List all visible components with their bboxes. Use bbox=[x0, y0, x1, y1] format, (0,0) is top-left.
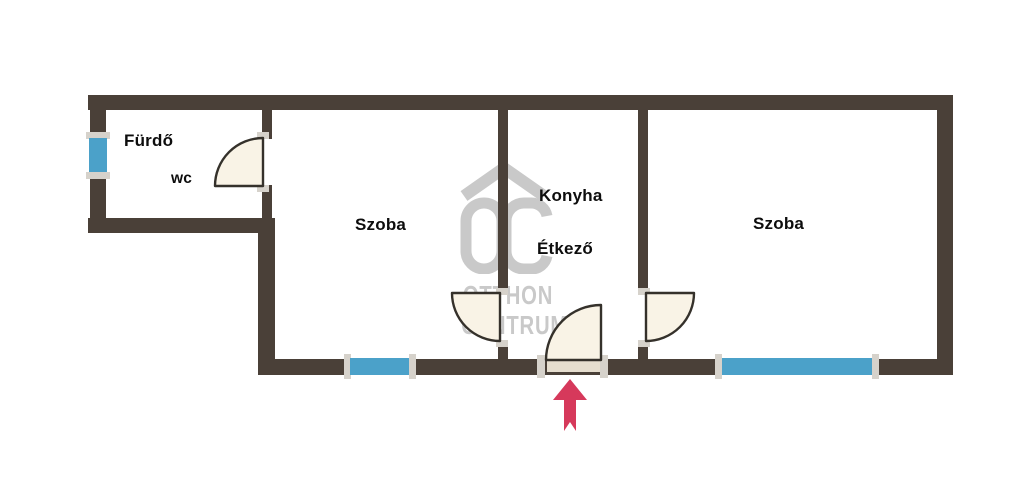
room-label-konyha: Konyha bbox=[539, 186, 603, 206]
room-label-szoba-left: Szoba bbox=[355, 215, 406, 235]
room-label-wc: wc bbox=[171, 170, 192, 188]
wall-partition-right-upper bbox=[638, 110, 648, 293]
window-bottom-right bbox=[722, 358, 873, 375]
entrance-door bbox=[546, 305, 601, 360]
left-room-door bbox=[452, 293, 500, 341]
window-bottom-left-sill-r bbox=[409, 354, 416, 379]
entrance-arrow-icon bbox=[553, 379, 587, 431]
wall-top bbox=[88, 95, 953, 110]
window-bottom-right-sill-r bbox=[872, 354, 879, 379]
wall-right bbox=[937, 95, 953, 375]
room-label-szoba-right: Szoba bbox=[753, 214, 804, 234]
logo-letter-c bbox=[506, 203, 547, 269]
logo-letter-o bbox=[466, 203, 502, 269]
room-label-etkezo: Étkező bbox=[537, 239, 593, 259]
bathroom-door bbox=[215, 138, 263, 186]
right-room-door bbox=[646, 293, 694, 341]
wall-partition-left-upper bbox=[498, 110, 508, 295]
room-label-furdo: Fürdő bbox=[124, 131, 173, 151]
wall-step-vertical bbox=[258, 224, 275, 359]
window-left bbox=[89, 138, 107, 172]
floorplan-canvas: OTTHON CENTRUM bbox=[0, 0, 1016, 500]
entrance-door-jamb-left bbox=[537, 355, 545, 378]
window-left-sill-bottom bbox=[86, 172, 110, 179]
wall-bathroom-bottom bbox=[88, 218, 275, 233]
window-bottom-left bbox=[350, 358, 410, 375]
window-bottom-right-sill-l bbox=[715, 354, 722, 379]
